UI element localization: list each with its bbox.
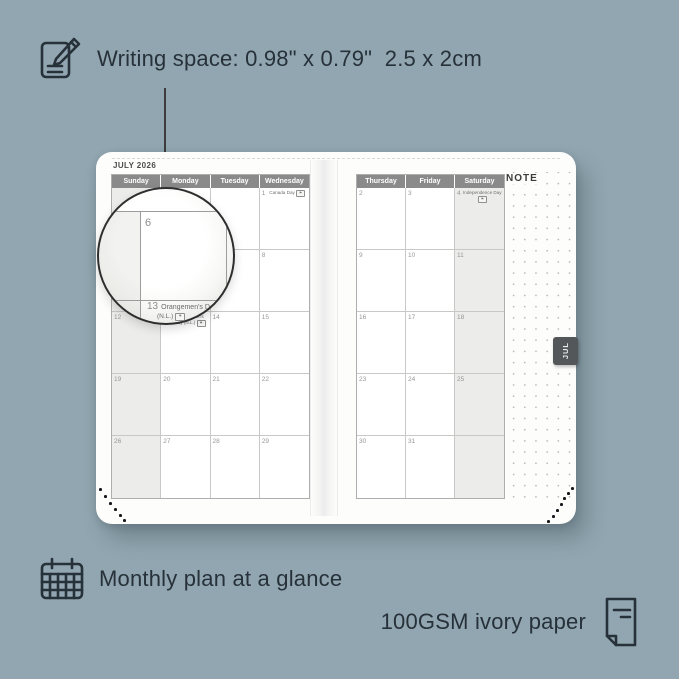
magnified-date-6: 6: [145, 217, 151, 229]
right-day-cell-4[interactable]: 4Independence Day ⚑: [455, 188, 504, 250]
left-day-cell-21[interactable]: 21: [211, 374, 260, 436]
right-day-cell-2[interactable]: 2: [357, 188, 406, 250]
paper-annotation: 100GSM ivory paper: [381, 596, 641, 648]
right-day-cell-18[interactable]: 18: [455, 312, 504, 374]
left-day-cell-19[interactable]: 19: [112, 374, 161, 436]
right-day-cell-empty[interactable]: [455, 436, 504, 498]
paper-sheet-icon: [599, 596, 641, 648]
left-day-cell-27[interactable]: 27: [161, 436, 210, 498]
right-calendar-grid: ThursdayFridaySaturday234Independence Da…: [356, 174, 505, 499]
day-header-sunday: Sunday: [112, 175, 161, 188]
date-number: 20: [163, 376, 170, 383]
date-number: 9: [359, 252, 363, 259]
writing-space-annotation: Writing space: 0.98" x 0.79" 2.5 x 2cm: [38, 36, 482, 82]
day-header-wednesday: Wednesday: [260, 175, 309, 188]
flag-icon: ⚑: [478, 196, 487, 203]
date-number: 27: [163, 438, 170, 445]
paper-label: 100GSM ivory paper: [381, 609, 586, 635]
day-header-tuesday: Tuesday: [211, 175, 260, 188]
day-header-thursday: Thursday: [357, 175, 406, 188]
date-number: 17: [408, 314, 415, 321]
stitch-dot: [563, 497, 566, 500]
right-day-cell-9[interactable]: 9: [357, 250, 406, 312]
date-number: 18: [457, 314, 464, 321]
stitch-dot: [556, 509, 559, 512]
flag-icon: ⚑: [197, 320, 206, 327]
left-day-cell-1[interactable]: 1Canada Day ⚑: [260, 188, 309, 250]
magnified-date-13-row: 13 Orangemen's Day: [147, 302, 217, 312]
magnifier-circle: 6 7 13 Orangemen's Day (N.L.) ⚑: [97, 187, 235, 325]
stitch-dot: [547, 520, 550, 523]
month-title: JULY 2026: [113, 161, 156, 170]
date-number: 3: [408, 190, 412, 197]
date-number: 1: [262, 190, 266, 197]
flag-icon: ⚑: [175, 313, 185, 321]
date-number: 11: [457, 252, 464, 259]
stitch-dot: [114, 508, 117, 511]
right-day-cell-11[interactable]: 11: [455, 250, 504, 312]
stitch-dot: [560, 503, 563, 506]
right-day-cell-10[interactable]: 10: [406, 250, 455, 312]
date-number: 8: [262, 252, 266, 259]
date-number: 10: [408, 252, 415, 259]
date-number: 24: [408, 376, 415, 383]
stitch-dot: [104, 495, 107, 498]
left-day-cell-26[interactable]: 26: [112, 436, 161, 498]
stitch-dot: [123, 519, 126, 522]
stitch-dot: [99, 488, 102, 491]
holiday-label: Independence Day ⚑: [463, 190, 502, 203]
magnified-grid-line: [226, 211, 227, 303]
right-day-cell-17[interactable]: 17: [406, 312, 455, 374]
date-number: 22: [262, 376, 269, 383]
date-number: 26: [114, 438, 121, 445]
magnified-holiday-label: Orangemen's Day: [161, 304, 217, 311]
date-number: 29: [262, 438, 269, 445]
stitch-dot: [109, 502, 112, 505]
magnified-grid-line: [140, 211, 141, 323]
date-number: 19: [114, 376, 121, 383]
date-number: 25: [457, 376, 464, 383]
stitch-dot: [552, 515, 555, 518]
magnified-grid-line: [99, 211, 233, 212]
right-day-cell-30[interactable]: 30: [357, 436, 406, 498]
magnified-date-13: 13: [147, 302, 158, 312]
day-header-saturday: Saturday: [455, 175, 504, 188]
page-edge: [112, 158, 560, 159]
date-number: 21: [213, 376, 220, 383]
left-day-cell-29[interactable]: 29: [260, 436, 309, 498]
calendar-icon: [38, 556, 86, 602]
day-header-friday: Friday: [406, 175, 455, 188]
flag-icon: ⚑: [296, 190, 305, 197]
month-tab-label: JUL: [561, 342, 570, 359]
magnified-sunday-shade: [99, 211, 140, 323]
monthly-plan-label: Monthly plan at a glance: [99, 566, 342, 592]
date-number: 15: [262, 314, 269, 321]
left-day-cell-15[interactable]: 15: [260, 312, 309, 374]
date-number: 23: [359, 376, 366, 383]
stitch-dot: [567, 492, 570, 495]
month-tab[interactable]: JUL: [553, 337, 578, 365]
left-day-cell-8[interactable]: 8: [260, 250, 309, 312]
holiday-label: Canada Day ⚑: [267, 190, 307, 197]
left-day-cell-28[interactable]: 28: [211, 436, 260, 498]
date-number: 28: [213, 438, 220, 445]
writing-space-label: Writing space: 0.98" x 0.79" 2.5 x 2cm: [97, 46, 482, 72]
right-day-cell-16[interactable]: 16: [357, 312, 406, 374]
right-day-cell-3[interactable]: 3: [406, 188, 455, 250]
stitch-dot: [119, 514, 122, 517]
left-day-cell-14[interactable]: 14: [211, 312, 260, 374]
page-gutter: [310, 160, 338, 516]
right-day-cell-31[interactable]: 31: [406, 436, 455, 498]
date-number: 2: [359, 190, 363, 197]
date-number: 31: [408, 438, 415, 445]
date-number: 30: [359, 438, 366, 445]
left-day-cell-20[interactable]: 20: [161, 374, 210, 436]
note-label: NOTE: [506, 173, 542, 184]
date-number: 4: [457, 190, 461, 197]
notepad-pencil-icon: [38, 36, 84, 82]
right-day-cell-25[interactable]: 25: [455, 374, 504, 436]
left-day-cell-22[interactable]: 22: [260, 374, 309, 436]
date-number: 16: [359, 314, 366, 321]
note-dot-grid: [504, 172, 574, 500]
right-day-cell-23[interactable]: 23: [357, 374, 406, 436]
date-number: 14: [213, 314, 220, 321]
monthly-plan-annotation: Monthly plan at a glance: [38, 556, 342, 602]
stitch-dot: [571, 487, 574, 490]
right-day-cell-24[interactable]: 24: [406, 374, 455, 436]
magnified-holiday-region: (N.L.) ⚑: [157, 313, 185, 321]
day-header-monday: Monday: [161, 175, 210, 188]
